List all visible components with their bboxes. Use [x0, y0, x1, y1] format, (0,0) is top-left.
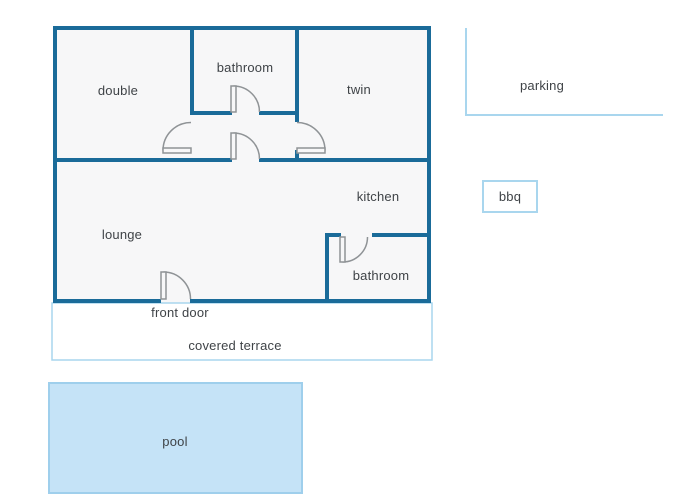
twin-door-leaf — [297, 148, 325, 153]
hallway-door-leaf — [231, 133, 236, 159]
wall-lounge-north-right — [259, 158, 431, 162]
room-label-bathroom-bottom: bathroom — [353, 268, 410, 283]
room-label-lounge: lounge — [102, 227, 142, 242]
room-label-bathroom-top: bathroom — [217, 60, 274, 75]
room-label-twin: twin — [347, 82, 371, 97]
wall-lounge-north-left — [53, 158, 232, 162]
wall-double-bathroom — [190, 26, 194, 115]
wall-south-left — [53, 299, 161, 303]
wall-bathroom-south-left — [190, 111, 232, 115]
wall-bathroom2-north-right — [372, 233, 431, 237]
wall-bathroom-twin — [295, 26, 299, 122]
wall-east — [427, 26, 431, 303]
label-front-door: front door — [151, 305, 209, 320]
wall-south-right — [190, 299, 431, 303]
room-label-kitchen: kitchen — [357, 189, 400, 204]
floor-plan-drawing: double bathroom twin kitchen lounge bath… — [0, 0, 700, 500]
parking-boundary — [466, 28, 663, 115]
floor-plan: double bathroom twin kitchen lounge bath… — [0, 0, 700, 500]
label-bbq: bbq — [499, 189, 521, 204]
room-label-double: double — [98, 83, 138, 98]
wall-bathroom2-west — [325, 233, 329, 299]
bathroom-door-leaf — [231, 86, 236, 112]
label-pool: pool — [162, 434, 187, 449]
label-parking: parking — [520, 78, 564, 93]
label-covered-terrace: covered terrace — [188, 338, 281, 353]
double-door-leaf — [163, 148, 191, 153]
wall-west — [53, 26, 57, 303]
front-door-leaf — [161, 272, 166, 299]
wall-bathroom-south-right — [259, 111, 299, 115]
bathroom2-door-leaf — [340, 237, 345, 262]
wall-north — [53, 26, 431, 30]
